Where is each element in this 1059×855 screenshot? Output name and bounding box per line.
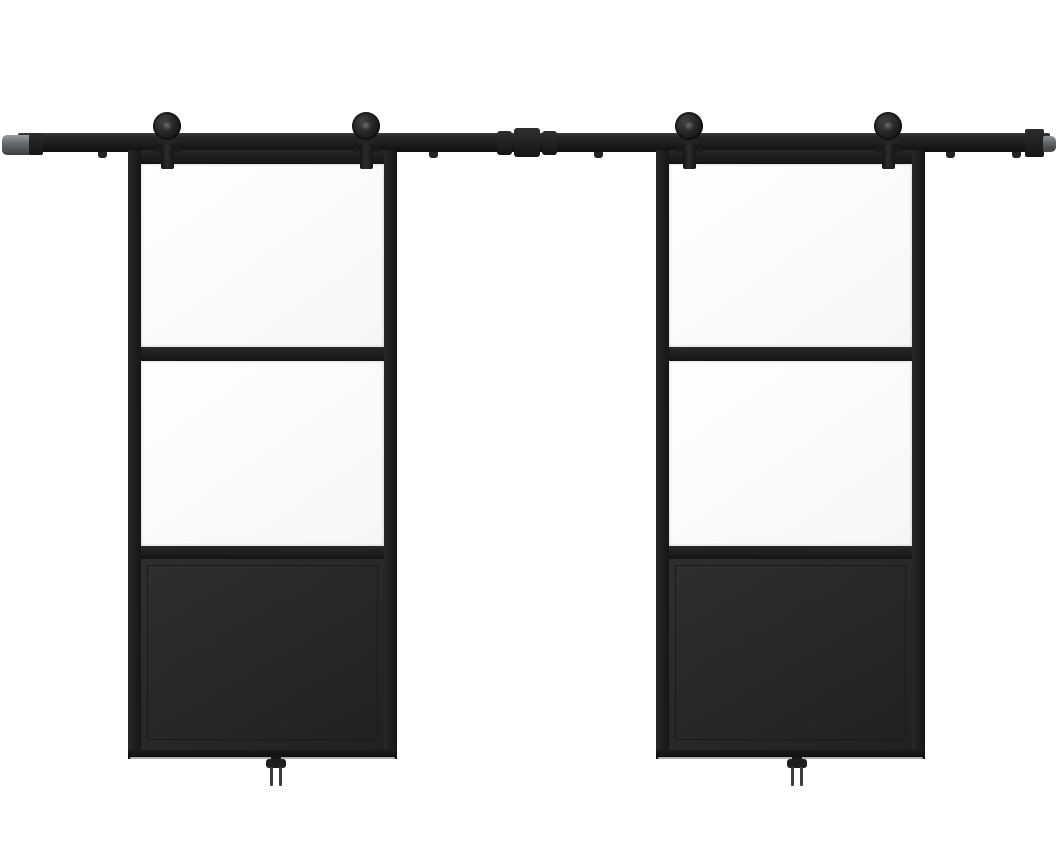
glass-panel-top — [669, 164, 912, 347]
glass-panel-middle — [669, 361, 912, 546]
strap-mount-screw — [374, 147, 380, 153]
floor-guide-pin — [800, 767, 803, 786]
floor-guide-pin — [270, 767, 273, 786]
barn-door-product-image — [0, 0, 1059, 855]
glass-panel-middle — [141, 361, 384, 546]
door-mid-rail-lower — [128, 546, 397, 559]
bottom-panel-recess — [675, 565, 906, 740]
door-mid-rail-lower — [656, 546, 925, 559]
door-right-stile — [912, 150, 925, 759]
rail-end-stop-left-collar — [29, 133, 43, 155]
left-door — [128, 150, 397, 759]
bottom-panel-recess — [147, 565, 378, 740]
floor-guide-body — [787, 759, 807, 768]
rail-connector-block — [542, 131, 557, 155]
strap-mount-screw — [154, 147, 160, 153]
floor-guide-pin — [791, 767, 794, 786]
rail-end-stop-right-cap — [1043, 136, 1056, 152]
door-mid-rail-upper — [128, 347, 397, 361]
strap-mount-screw — [875, 147, 881, 153]
door-left-stile — [656, 150, 669, 759]
strap-mount-screw — [697, 147, 703, 153]
rail-connector-block — [497, 131, 512, 155]
strap-mount-screw — [175, 147, 181, 153]
rail-connector-block — [514, 128, 540, 157]
door-mid-rail-upper — [656, 347, 925, 361]
roller-hub-bolt — [884, 122, 893, 131]
right-door — [656, 150, 925, 759]
strap-mount-screw — [896, 147, 902, 153]
strap-mount-screw — [676, 147, 682, 153]
roller-hub-bolt — [362, 122, 371, 131]
door-right-stile — [384, 150, 397, 759]
door-left-stile — [128, 150, 141, 759]
floor-guide-pin — [279, 767, 282, 786]
strap-mount-screw — [353, 147, 359, 153]
door-bottom-highlight — [130, 757, 395, 759]
floor-guide-body — [266, 759, 286, 768]
glass-panel-top — [141, 164, 384, 347]
roller-hub-bolt — [163, 122, 172, 131]
roller-hub-bolt — [685, 122, 694, 131]
rail-end-stop-right-collar — [1025, 129, 1044, 157]
rail-end-stop-left-cap — [2, 135, 31, 155]
